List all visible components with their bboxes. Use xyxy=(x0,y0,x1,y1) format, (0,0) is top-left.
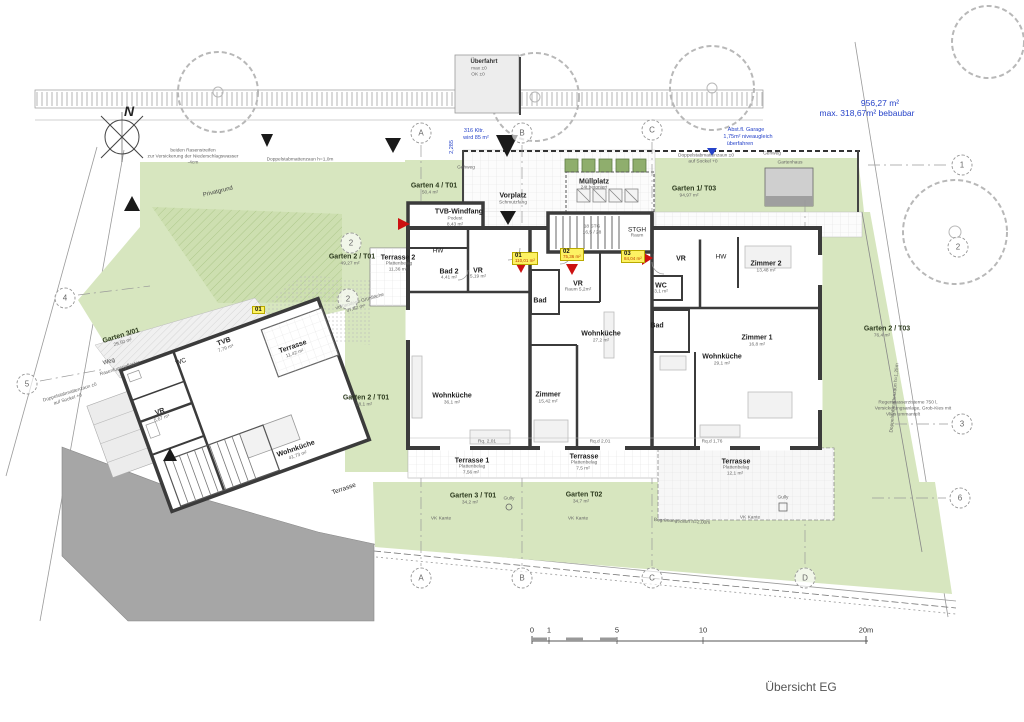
plan-label: Doppelstabmattenzaun h=1,25m xyxy=(889,363,900,433)
plan-label: Terrasse 1 xyxy=(455,458,490,465)
drawing-title: Übersicht EG xyxy=(765,680,836,694)
grid-axis-bubble: A xyxy=(411,568,432,589)
plan-label: Garten 2 / T03 xyxy=(864,326,910,333)
plan-label: Wohnküche xyxy=(581,331,621,338)
plan-label: VR xyxy=(573,281,583,288)
plan-label: 16,5 / 28 xyxy=(583,231,602,236)
plan-label: 24t betoniert xyxy=(581,186,608,191)
scale-bar-tick-label: 10 xyxy=(699,626,707,635)
plan-label: Raum 5,2m² xyxy=(565,288,591,293)
plan-label: 34,2 m² xyxy=(462,501,478,506)
plan-label: HW xyxy=(716,254,727,261)
plan-label: WC xyxy=(655,283,667,290)
unit-badge: 01110,01 m² xyxy=(512,252,538,265)
plan-label: Garten 2 / T01 xyxy=(343,395,389,402)
grid-axis-bubble: C xyxy=(642,568,663,589)
plan-label: Vlies ummantelt xyxy=(886,413,920,418)
plan-label: 956,27 m² xyxy=(861,98,899,108)
plan-label: Zimmer xyxy=(535,392,560,399)
grid-axis-bubble: C xyxy=(642,120,663,141)
site-plan-page: N956,27 m²max. 318,67m² bebaubarÜberfahr… xyxy=(0,0,1024,722)
plan-label: 76,4 m² xyxy=(874,334,890,339)
plan-label: Vorplatz xyxy=(499,193,526,200)
grid-axis-bubble: 6 xyxy=(950,488,971,509)
plan-label: Garten 1/ T03 xyxy=(672,186,716,193)
grid-axis-bubble: 1 xyxy=(952,155,973,176)
grid-axis-bubble: 4 xyxy=(55,288,76,309)
plan-label: Terrasse xyxy=(722,459,751,466)
plan-label: Zimmer 1 xyxy=(741,335,772,342)
plan-label: Doppelstabmattenzaun h=1,0m xyxy=(267,158,334,163)
plan-label: Gehweg xyxy=(763,152,781,157)
grid-axis-bubble: 5 xyxy=(17,374,38,395)
plan-label: Gully xyxy=(504,497,515,502)
plan-label: 29,1 m² xyxy=(714,362,730,367)
plan-label: Plattenbelag xyxy=(386,262,413,267)
grid-axis-bubble: A xyxy=(411,123,432,144)
plan-label: 4,41 m² xyxy=(441,276,457,281)
plan-label: 36,1 m² xyxy=(444,401,460,406)
plan-label: Abst.fl. Garage xyxy=(728,127,765,133)
unit-badge: 0275,36 m² xyxy=(560,248,584,261)
plan-label: Gehweg xyxy=(457,166,475,171)
plan-label: TVB-Windfang xyxy=(435,209,483,216)
plan-label: VR xyxy=(473,268,483,275)
plan-label: Terrasse xyxy=(570,454,599,461)
plan-label: 11,36 m² xyxy=(389,268,408,273)
plan-label: Überfahrt xyxy=(470,59,497,65)
plan-label: Plattenbelag xyxy=(571,461,598,466)
plan-label: VK Kante xyxy=(431,517,451,522)
plan-label: Rq.d 2,01 xyxy=(590,440,611,445)
plan-label: 316 Kltr. xyxy=(464,128,484,134)
plan-label: 27,2 m² xyxy=(593,339,609,344)
grid-axis-bubble: 2 xyxy=(948,237,969,258)
grid-axis-bubble: B xyxy=(512,568,533,589)
grid-axis-bubble: D xyxy=(795,568,816,589)
plan-label: Garten 3 / T01 xyxy=(450,493,496,500)
plan-label: HW xyxy=(433,248,444,255)
plan-label: Regenwasserzisterne 750 l, xyxy=(878,401,937,406)
plan-label: auf Sockel +0 xyxy=(688,160,717,165)
plan-label: 49,27 m² xyxy=(341,262,360,267)
grid-axis-bubble: B xyxy=(512,123,533,144)
plan-label: zur Versickerung der Niederschlagswasser xyxy=(148,155,239,160)
plan-label: Privatgrund xyxy=(202,185,233,198)
plan-label: 50,4 m² xyxy=(422,191,438,196)
scale-bar-tick-label: 1 xyxy=(547,626,551,635)
plan-label: N xyxy=(124,103,134,119)
plan-label: wird 85 m² xyxy=(463,135,489,141)
plan-label: Gully xyxy=(778,496,789,501)
grid-axis-bubble: 3 xyxy=(952,414,973,435)
plan-label: Doppelstabmattenzaun ±0 xyxy=(678,154,734,159)
plan-label: 3,1 m² xyxy=(654,290,668,295)
scale-bar-tick-label: 20m xyxy=(859,626,874,635)
plan-label: 1,75m² niveaugleich xyxy=(723,134,772,140)
plan-label: 7,5 m² xyxy=(576,467,590,472)
plan-label: Terrasse 2 xyxy=(381,255,416,262)
plan-label: Begrünungszaun h=2,00m xyxy=(654,518,711,526)
plan-label: Terrasse xyxy=(331,482,357,497)
plan-label: STGH xyxy=(628,227,646,234)
plan-label: VR xyxy=(676,256,686,263)
plan-label: Gartenhaus xyxy=(777,161,802,166)
plan-label: Podest xyxy=(448,217,463,222)
plan-label: 38,1 m² xyxy=(356,403,372,408)
plan-label: Garten 4 / T01 xyxy=(411,183,457,190)
grid-axis-bubble: 2 xyxy=(338,289,359,310)
plan-label: Plattenbelag xyxy=(723,466,750,471)
plan-label: Rq.d 1,76 xyxy=(702,440,723,445)
plan-label: 5,19 m² xyxy=(470,275,486,280)
plan-label: Schmutzfang xyxy=(499,201,527,206)
plan-label: Raum xyxy=(631,234,644,239)
unit-badge: 01 xyxy=(252,306,265,314)
plan-label: 13,48 m² xyxy=(757,269,776,274)
plan-label: überfahren xyxy=(727,141,754,147)
plan-label: Garten 2 / T01 xyxy=(329,254,375,261)
plan-label: OK ±0 xyxy=(471,73,485,78)
plan-label: Versickerungsanlage, Grob-Kies mit xyxy=(875,407,952,412)
plan-label: Wohnküche xyxy=(432,393,472,400)
plan-label: Garten T02 xyxy=(566,492,603,499)
plan-label: 34,7 m² xyxy=(573,500,589,505)
plan-label: Plattenbelag xyxy=(459,465,486,470)
labels-layer: N956,27 m²max. 318,67m² bebaubarÜberfahr… xyxy=(0,0,1024,722)
plan-label: Bad 2 xyxy=(439,269,458,276)
plan-label: WC xyxy=(175,357,188,367)
plan-label: max. 318,67m² bebaubar xyxy=(820,108,915,118)
plan-label: 16,8 m² xyxy=(749,343,765,348)
plan-label: VK Kante xyxy=(568,517,588,522)
plan-label: 94,97 m² xyxy=(680,194,699,199)
plan-label: Wohnküche xyxy=(702,354,742,361)
plan-label: 12,1 m² xyxy=(727,472,743,477)
scale-bar-tick-label: 5 xyxy=(615,626,619,635)
plan-label: Rq. 2,01 xyxy=(478,440,496,445)
plan-label: 8,43 m² xyxy=(447,223,463,228)
plan-label: max ±0 xyxy=(471,67,487,72)
plan-label: 7,56 m² xyxy=(463,471,479,476)
grid-axis-bubble: 2 xyxy=(341,233,362,254)
plan-label: 2,285 xyxy=(449,140,455,154)
plan-label: 18 STG xyxy=(584,225,601,230)
plan-label: -4cm xyxy=(188,161,199,166)
plan-label: Weg xyxy=(102,357,115,366)
scale-bar-tick-label: 0 xyxy=(530,626,534,635)
plan-label: Bad xyxy=(650,323,663,330)
plan-label: beiden Rasenstreifen xyxy=(170,149,215,154)
plan-label: VK Kante xyxy=(740,516,760,521)
plan-label: Zimmer 2 xyxy=(750,261,781,268)
unit-badge: 0384,04 m² xyxy=(621,250,645,263)
plan-label: Müllplatz xyxy=(579,179,609,186)
plan-label: 15,42 m² xyxy=(539,400,558,405)
plan-label: Bad xyxy=(533,298,546,305)
